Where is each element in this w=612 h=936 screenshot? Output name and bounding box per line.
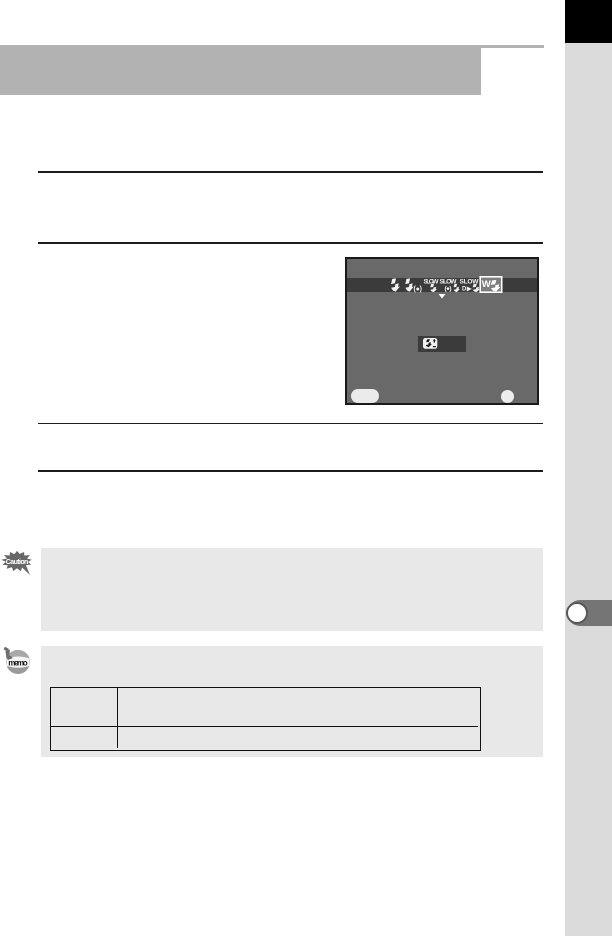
svg-text:(●): (●) [414,286,423,293]
svg-text:memo: memo [8,659,28,668]
svg-text:D▶: D▶ [462,286,472,293]
svg-text:(●): (●) [445,285,452,292]
svg-text:Caution: Caution [6,559,29,566]
svg-text:W: W [482,279,491,290]
